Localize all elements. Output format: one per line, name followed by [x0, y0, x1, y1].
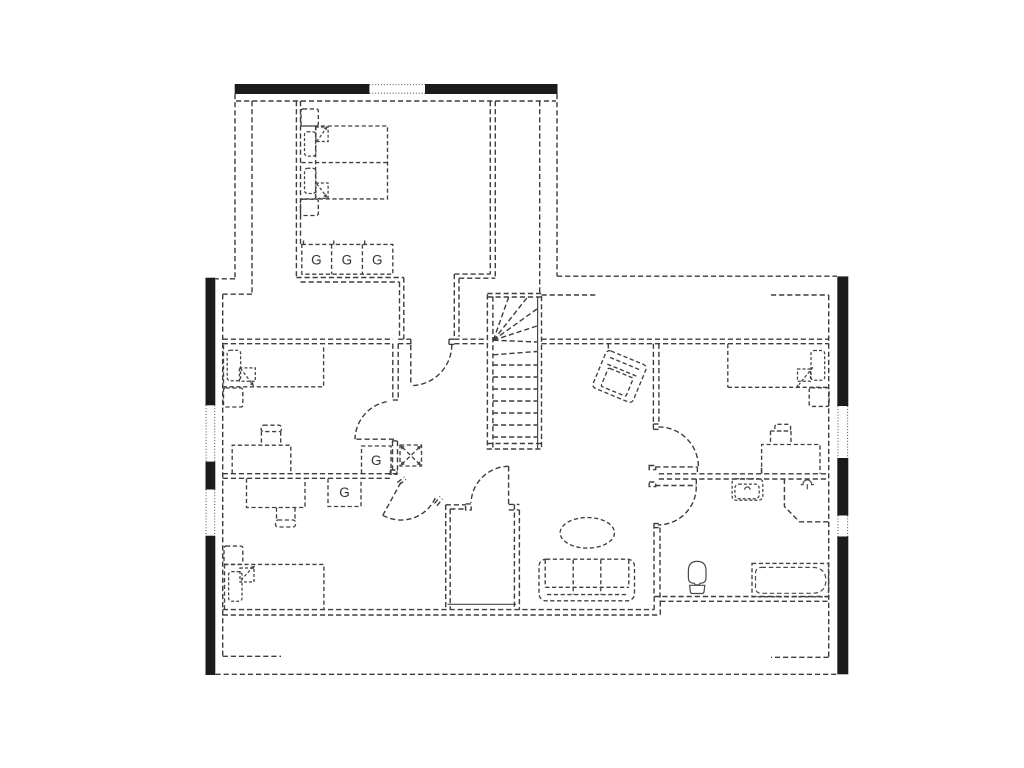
svg-text:G: G	[311, 252, 322, 267]
svg-text:G: G	[342, 252, 353, 267]
svg-text:G: G	[371, 453, 382, 468]
svg-text:G: G	[372, 252, 383, 267]
svg-text:G: G	[339, 485, 350, 500]
